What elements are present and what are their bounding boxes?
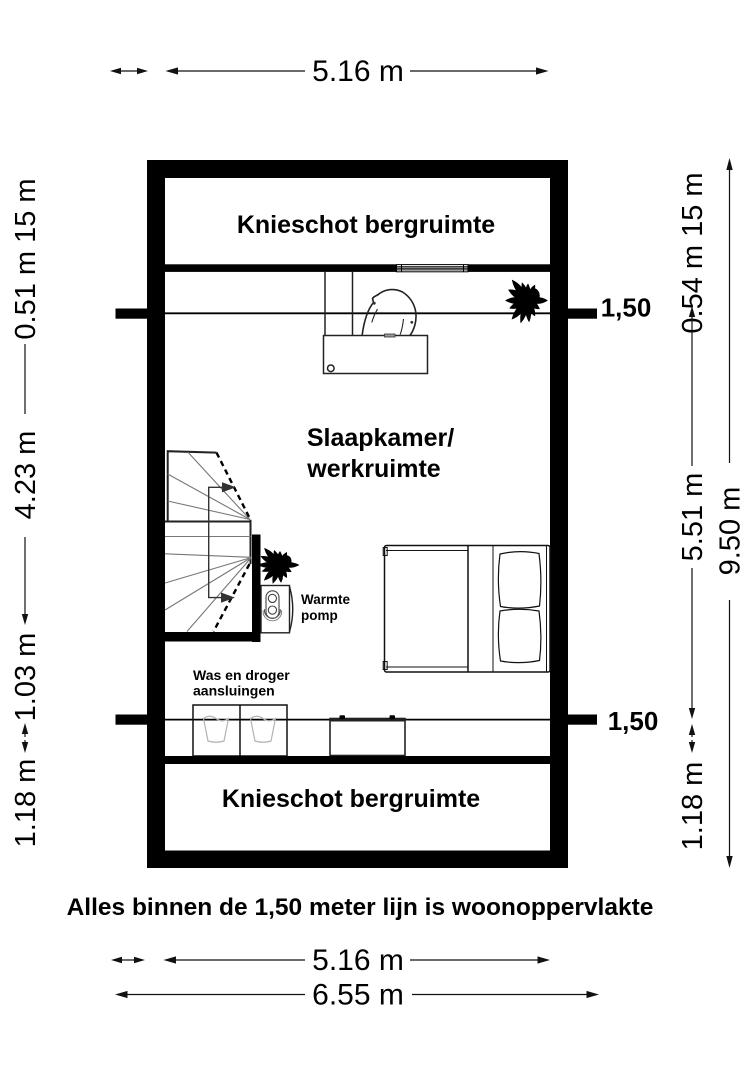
svg-text:aansluingen: aansluingen [193,683,275,699]
svg-text:1.18 m: 1.18 m [10,759,42,848]
svg-text:Slaapkamer/: Slaapkamer/ [307,424,454,452]
svg-text:1,50: 1,50 [608,706,659,736]
svg-text:5.16 m: 5.16 m [312,944,404,977]
svg-text:pomp: pomp [301,608,338,623]
svg-text:6.55 m: 6.55 m [312,979,404,1012]
svg-text:5.16 m: 5.16 m [312,55,404,88]
svg-text:1.03 m: 1.03 m [10,633,42,722]
svg-text:1,50: 1,50 [601,293,652,323]
svg-text:5.51 m: 5.51 m [677,473,709,562]
svg-text:werkruimte: werkruimte [306,455,440,483]
svg-text:0.51 m 15 m: 0.51 m 15 m [10,178,42,339]
svg-text:Was en droger: Was en droger [193,667,290,683]
svg-text:Knieschot bergruimte: Knieschot bergruimte [222,785,480,813]
svg-text:1.18 m: 1.18 m [677,762,709,851]
svg-text:Alles binnen de 1,50 meter lij: Alles binnen de 1,50 meter lijn is woono… [67,894,654,921]
svg-text:0.54 m 15 m: 0.54 m 15 m [677,172,709,333]
svg-text:4.23 m: 4.23 m [10,431,42,520]
svg-text:Knieschot bergruimte: Knieschot bergruimte [237,211,495,239]
svg-text:9.50 m: 9.50 m [715,487,747,576]
svg-text:Warmte: Warmte [301,592,351,607]
